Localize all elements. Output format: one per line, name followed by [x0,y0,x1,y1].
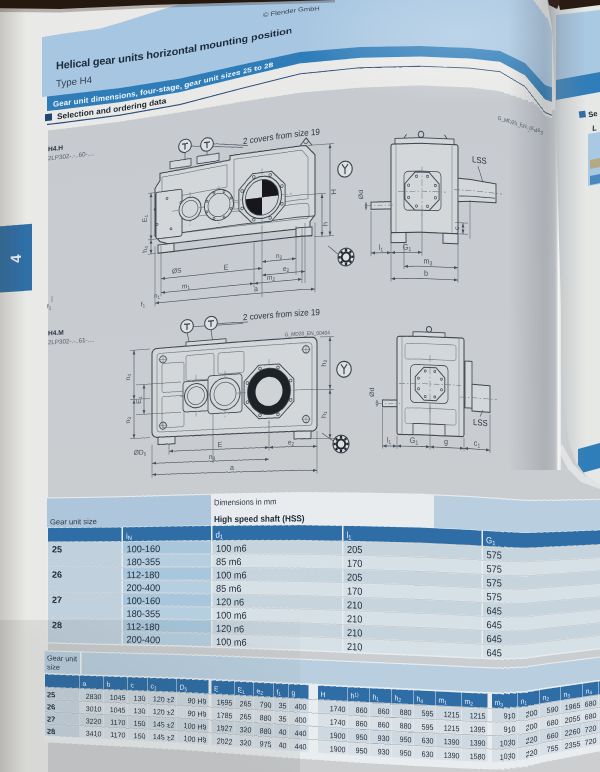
svg-text:Se: Se [588,109,598,119]
